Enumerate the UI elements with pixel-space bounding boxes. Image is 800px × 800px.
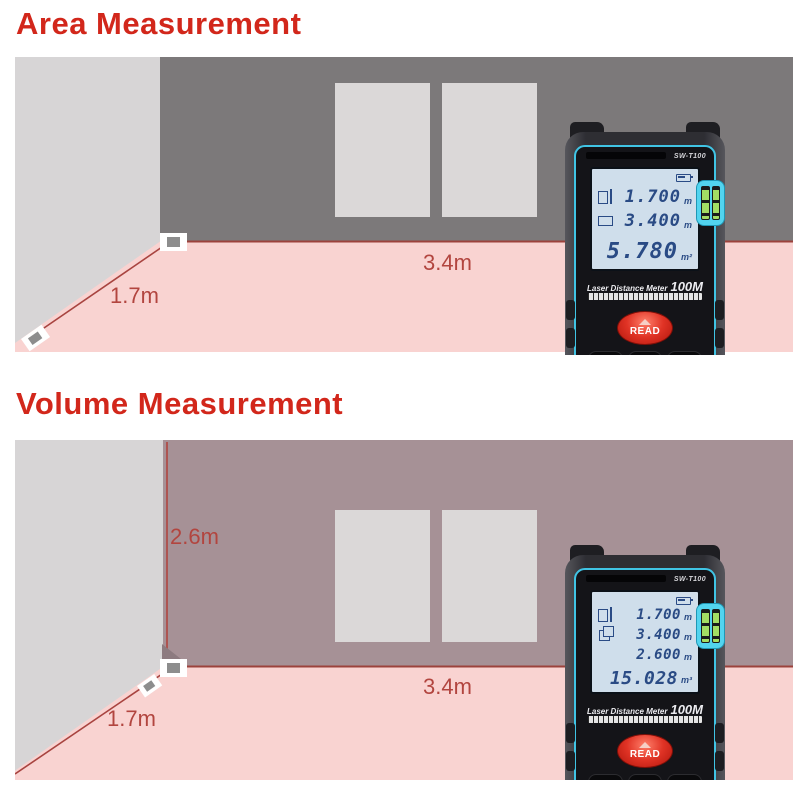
ruler-graphic xyxy=(588,716,702,723)
level-vial xyxy=(701,186,710,220)
bubble-level xyxy=(696,180,725,226)
screen-row: 2.600 m xyxy=(598,645,692,665)
measure-from-rear-icon xyxy=(598,191,608,204)
screen-unit: m² xyxy=(681,252,692,265)
laser-target-marker xyxy=(160,659,187,677)
screen-row: 1.700 m xyxy=(598,605,692,625)
grip-notch xyxy=(715,300,724,320)
read-button: READ xyxy=(617,734,673,768)
battery-icon xyxy=(676,174,691,182)
screen-value: 1.700 xyxy=(636,607,681,623)
screen-row: 3.400 m xyxy=(598,625,692,645)
brand-label: Laser Distance Meter xyxy=(587,707,667,716)
measurement-label-diagonal: 1.7m xyxy=(110,283,159,309)
level-vial xyxy=(701,609,710,643)
laser-target-marker xyxy=(160,233,187,251)
ruler-graphic xyxy=(588,293,702,300)
bubble-level xyxy=(696,603,725,649)
screen-unit: m xyxy=(684,652,692,665)
volume-icon xyxy=(599,630,610,641)
area-measurement-title: Area Measurement xyxy=(16,6,301,42)
keypad xyxy=(588,774,702,780)
keypad-button xyxy=(588,351,623,355)
product-image: Area Measurement 1.7m 3.4m xyxy=(0,0,800,800)
laser-distance-meter: SW-T100 1.700 m 3.400 m 5. xyxy=(565,122,725,355)
device-face: SW-T100 1.700 m 3.400 m 5. xyxy=(574,145,716,355)
screen-unit: m xyxy=(684,632,692,645)
screen-row: 1.700 m xyxy=(598,185,692,209)
measure-from-rear-icon xyxy=(598,609,608,622)
level-vial xyxy=(712,609,721,643)
keypad-button xyxy=(628,774,663,780)
measurement-label-width: 3.4m xyxy=(423,674,472,700)
grip-notch xyxy=(566,751,575,771)
device-body: SW-T100 1.700 m 3.400 m 2. xyxy=(565,555,725,780)
grip-notch xyxy=(715,723,724,743)
laser-target-marker xyxy=(21,325,50,352)
laser-aperture xyxy=(586,152,666,159)
measurement-label-width: 3.4m xyxy=(423,250,472,276)
screen-row: 3.400 m xyxy=(598,209,692,233)
screen-value: 1.700 xyxy=(625,187,681,207)
keypad xyxy=(588,351,702,355)
keypad-button xyxy=(667,351,702,355)
up-triangle-icon xyxy=(639,742,651,748)
screen-result-row: 15.028 m³ xyxy=(598,668,692,688)
screen-unit: m xyxy=(684,612,692,625)
screen-result-row: 5.780 m² xyxy=(598,237,692,265)
device-body: SW-T100 1.700 m 3.400 m 5. xyxy=(565,132,725,355)
device-screen: 1.700 m 3.400 m 2.600 m xyxy=(590,590,700,694)
brand-line: Laser Distance Meter 100M xyxy=(576,279,714,294)
device-screen: 1.700 m 3.400 m 5.780 m² xyxy=(590,167,700,271)
grip-notch xyxy=(715,751,724,771)
measurement-label-height: 2.6m xyxy=(170,524,219,550)
area-icon xyxy=(598,216,613,226)
screen-unit: m³ xyxy=(681,675,692,688)
grip-notch xyxy=(566,723,575,743)
read-button: READ xyxy=(617,311,673,345)
keypad-button xyxy=(667,774,702,780)
screen-result-value: 15.028 xyxy=(610,668,678,689)
laser-target-marker xyxy=(137,674,162,698)
keypad-button xyxy=(588,774,623,780)
screen-value: 3.400 xyxy=(625,211,681,231)
measurement-label-diagonal: 1.7m xyxy=(107,706,156,732)
screen-value: 3.400 xyxy=(636,627,681,643)
volume-measurement-title: Volume Measurement xyxy=(16,386,343,422)
up-triangle-icon xyxy=(639,319,651,325)
grip-notch xyxy=(566,328,575,348)
range-label: 100M xyxy=(670,279,703,294)
grip-notch xyxy=(715,328,724,348)
brand-label: Laser Distance Meter xyxy=(587,284,667,293)
laser-aperture xyxy=(586,575,666,582)
screen-unit: m xyxy=(684,220,692,233)
screen-value: 2.600 xyxy=(636,647,681,663)
screen-unit: m xyxy=(684,196,692,209)
laser-distance-meter: SW-T100 1.700 m 3.400 m 2. xyxy=(565,545,725,780)
battery-icon xyxy=(676,597,691,605)
model-label: SW-T100 xyxy=(674,153,706,160)
device-face: SW-T100 1.700 m 3.400 m 2. xyxy=(574,568,716,780)
corner-shadow xyxy=(162,644,181,659)
brand-line: Laser Distance Meter 100M xyxy=(576,702,714,717)
level-vial xyxy=(712,186,721,220)
range-label: 100M xyxy=(670,702,703,717)
screen-result-value: 5.780 xyxy=(607,239,678,264)
keypad-button xyxy=(628,351,663,355)
model-label: SW-T100 xyxy=(674,576,706,583)
grip-notch xyxy=(566,300,575,320)
